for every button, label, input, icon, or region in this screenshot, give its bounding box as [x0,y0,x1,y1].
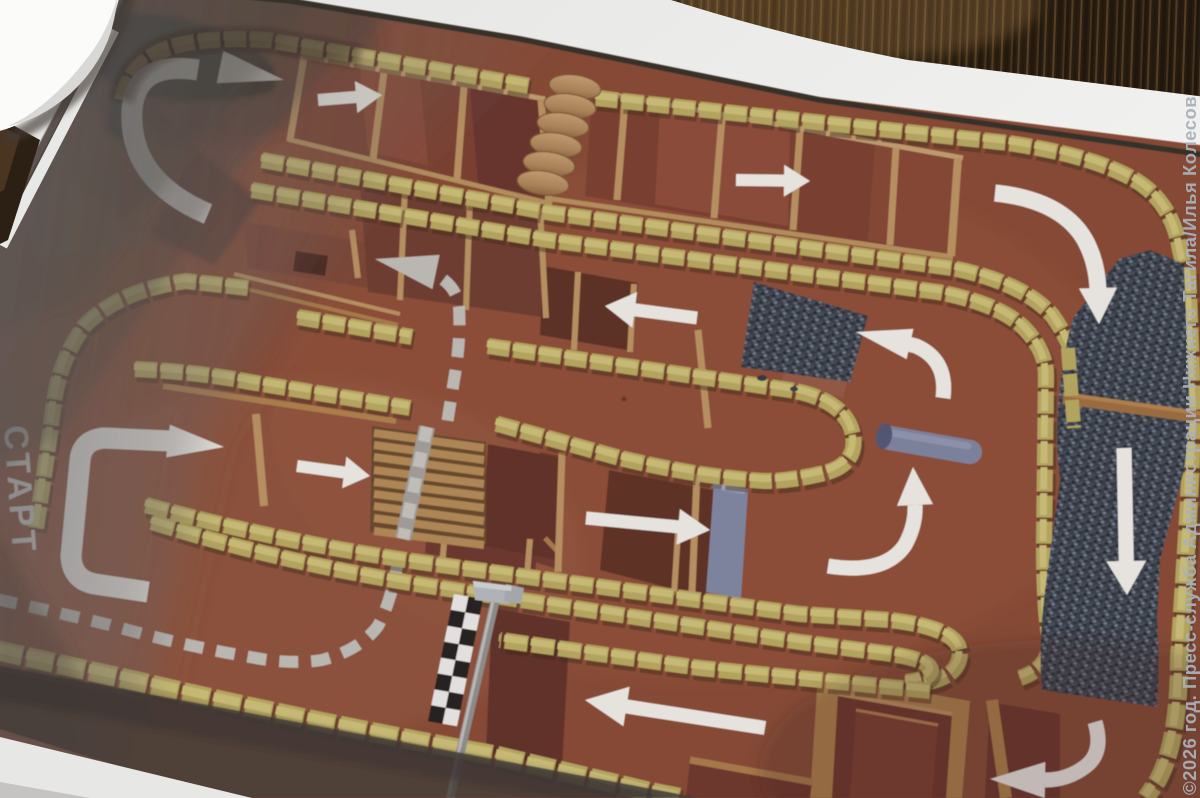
svg-text:©2026 год. Пресс-служба Админи: ©2026 год. Пресс-служба Администрации Ни… [1179,96,1200,795]
